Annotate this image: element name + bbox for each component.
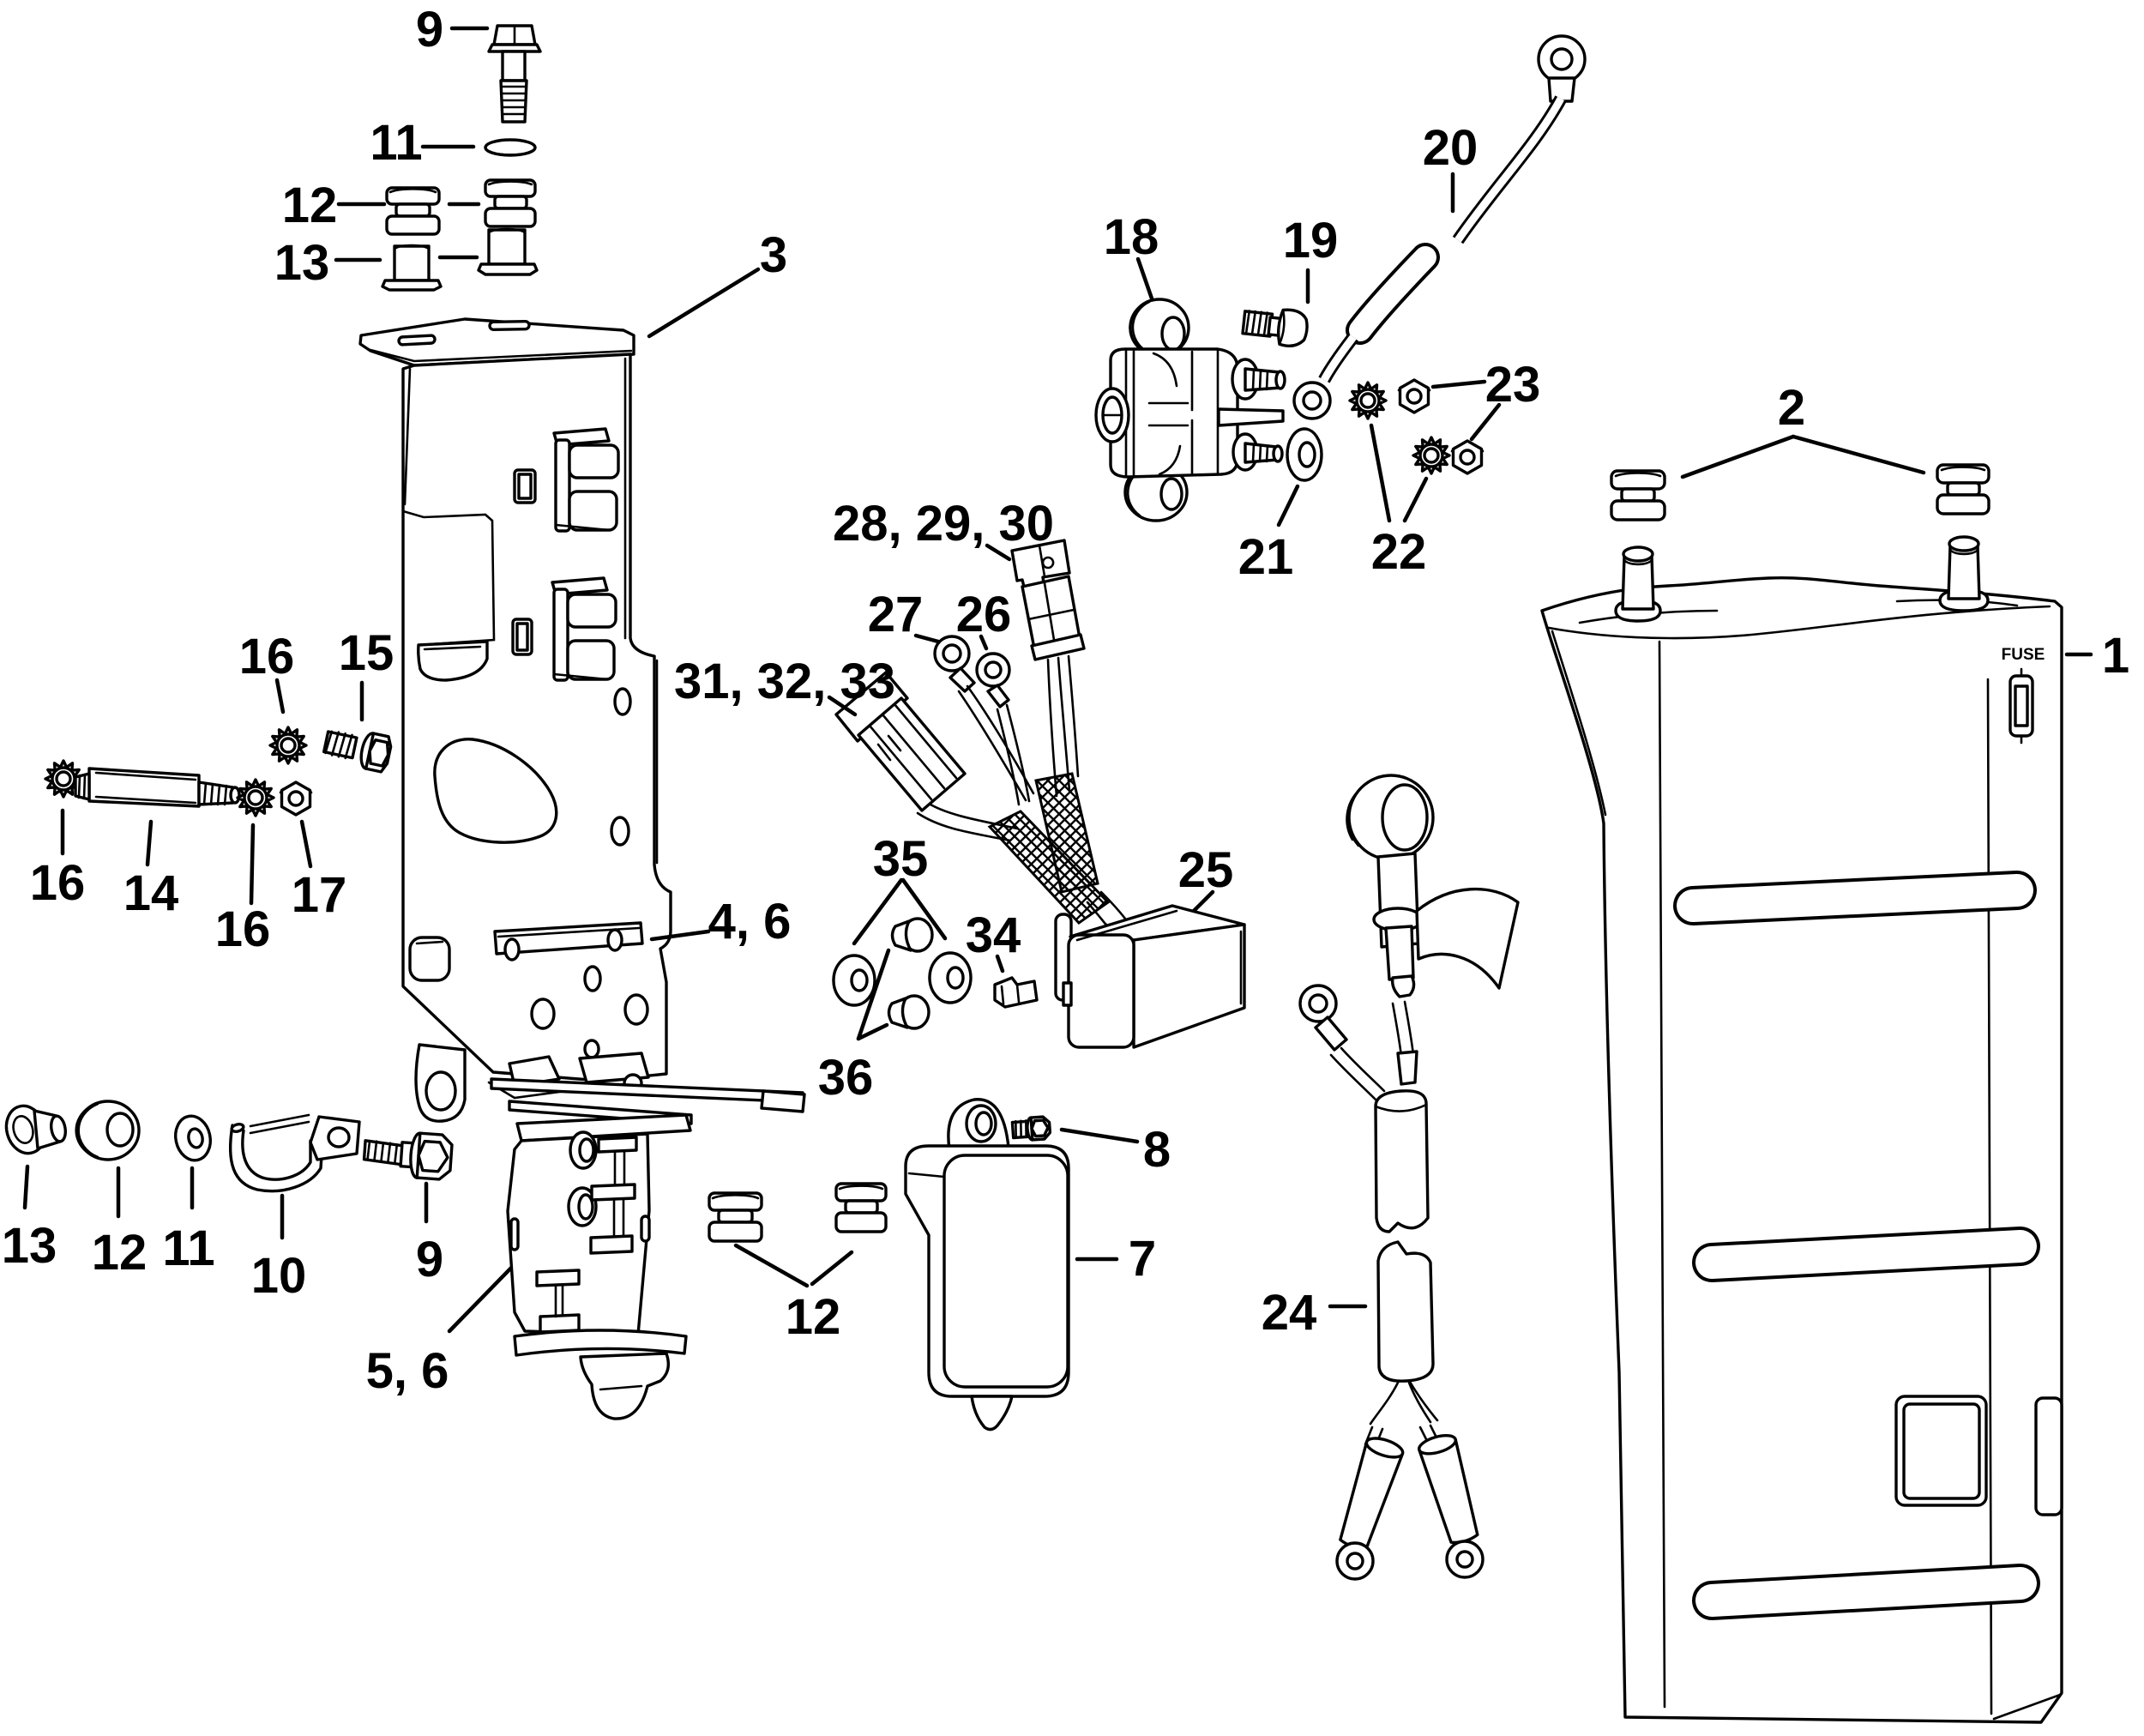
svg-text:10: 10 [251,1248,307,1304]
svg-text:13: 13 [2,1218,57,1274]
svg-text:14: 14 [123,865,179,921]
svg-text:3: 3 [760,227,787,283]
svg-text:FUSE: FUSE [2002,646,2045,664]
svg-text:19: 19 [1283,213,1339,268]
svg-text:24: 24 [1262,1285,1317,1341]
svg-text:17: 17 [292,867,347,923]
svg-text:31, 32, 33: 31, 32, 33 [674,654,895,709]
svg-text:8: 8 [1143,1122,1171,1178]
svg-text:13: 13 [274,235,330,291]
svg-text:34: 34 [966,907,1021,963]
svg-text:23: 23 [1485,357,1541,413]
svg-text:28, 29, 30: 28, 29, 30 [833,496,1054,552]
svg-text:20: 20 [1423,120,1479,176]
svg-text:16: 16 [239,629,295,684]
svg-text:26: 26 [956,587,1012,642]
svg-text:5, 6: 5, 6 [366,1343,449,1399]
svg-text:12: 12 [92,1225,148,1281]
svg-text:1: 1 [2102,628,2129,684]
svg-text:2: 2 [1778,380,1805,436]
svg-text:21: 21 [1238,529,1294,585]
svg-text:11: 11 [162,1221,214,1276]
svg-text:12: 12 [282,178,338,233]
svg-text:12: 12 [786,1289,841,1345]
svg-text:7: 7 [1129,1231,1156,1287]
svg-text:36: 36 [818,1050,874,1106]
svg-text:9: 9 [416,2,443,57]
svg-text:4, 6: 4, 6 [708,894,792,949]
svg-text:11: 11 [370,115,422,171]
svg-text:15: 15 [339,625,394,681]
svg-text:16: 16 [215,901,271,957]
svg-text:9: 9 [416,1232,443,1287]
svg-text:22: 22 [1371,524,1427,580]
svg-text:18: 18 [1104,209,1159,265]
svg-text:25: 25 [1178,842,1234,898]
svg-text:27: 27 [868,587,924,642]
svg-text:16: 16 [30,855,86,911]
